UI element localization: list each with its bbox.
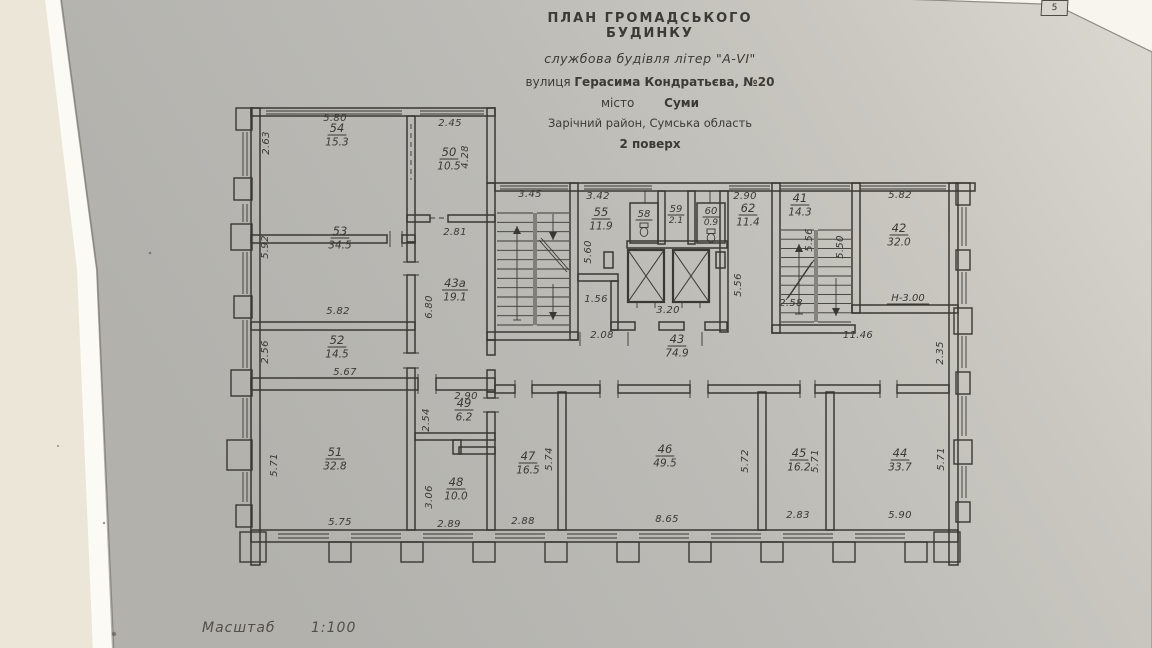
- dimension-label: 4.28: [460, 145, 471, 168]
- dimension-label: 1.56: [584, 294, 607, 305]
- dimension-label: 2.35: [935, 341, 946, 364]
- dimension-label: 2.58: [779, 298, 802, 309]
- room-number: 42: [892, 221, 907, 235]
- plan-title: ПЛАН ГРОМАДСЬКОГО БУДИНКУ: [516, 11, 784, 41]
- room-number: 53: [333, 224, 348, 238]
- scanned-floor-plan-page: 5.802.632.454.285.925.822.816.802.565.67…: [0, 0, 1152, 648]
- dimension-label: 5.74: [544, 447, 555, 470]
- room-number: 46: [658, 442, 673, 456]
- room-number: 52: [330, 333, 345, 347]
- room-number: 49: [457, 396, 472, 410]
- dimension-label: 2.83: [786, 510, 809, 521]
- district-line: Зарічний район, Сумська область: [516, 116, 784, 130]
- room-area: 49.5: [653, 458, 677, 470]
- plan-subtitle: службова будівля літер "А-VI": [516, 51, 784, 66]
- room-number: 44: [893, 446, 908, 460]
- street-label: вулиця: [526, 75, 571, 89]
- room-area: 32.8: [323, 461, 347, 473]
- dimension-label: 2.56: [260, 340, 271, 363]
- room-area: 34.5: [328, 240, 352, 252]
- dimension-label: 5.71: [269, 453, 280, 476]
- scale-word: Масштаб: [202, 620, 276, 636]
- scale-label: Масштаб 1:100: [202, 620, 356, 636]
- room-number: 62: [741, 201, 756, 215]
- dimension-label: 5.72: [740, 449, 751, 472]
- dimension-label: 5.75: [328, 517, 351, 528]
- dimension-label: 5.56: [733, 273, 744, 296]
- room-49-label: 496.2: [455, 396, 474, 424]
- room-43а-label: 43а19.1: [442, 276, 468, 304]
- room-number: 47: [521, 449, 536, 463]
- room-area: 2.1: [669, 216, 683, 226]
- room-area: 11.4: [736, 217, 759, 229]
- dimension-label: 11.46: [843, 330, 873, 341]
- room-number: 59: [670, 204, 683, 215]
- dimension-label: 5.67: [333, 367, 357, 378]
- dimension-label: 2.88: [511, 516, 534, 527]
- city-value: Суми: [664, 96, 699, 110]
- room-area: 10.5: [437, 161, 461, 173]
- dimension-label: 5.56: [804, 228, 815, 251]
- street-value: Герасима Кондратьєва, №20: [574, 75, 774, 89]
- room-number: 43: [670, 332, 685, 346]
- room-number: 45: [792, 446, 807, 460]
- room-number: 60: [705, 206, 718, 217]
- dimension-label: 3.06: [424, 485, 435, 508]
- room-area: 10.0: [444, 491, 468, 503]
- room-number: 50: [442, 145, 457, 159]
- dimension-label: 5.71: [810, 449, 821, 472]
- street-line: вулиця Герасима Кондратьєва, №20: [516, 75, 784, 89]
- dimension-label: 3.45: [518, 189, 541, 200]
- room-number: 48: [449, 475, 464, 489]
- room-number: 55: [594, 205, 609, 219]
- room-area: 0.9: [704, 218, 719, 228]
- dimension-label: 5.60: [583, 240, 594, 263]
- dimension-label: 8.65: [655, 514, 678, 525]
- room-area: 74.9: [665, 348, 689, 360]
- page-number-box: 5: [1041, 0, 1069, 16]
- city-label: місто: [601, 96, 634, 110]
- dimension-label: 5.82: [326, 306, 349, 317]
- room-area: 32.0: [887, 237, 911, 249]
- dimension-label: 5.90: [888, 510, 911, 521]
- dimension-label: 2.45: [438, 118, 461, 129]
- dimension-label: 2.08: [590, 330, 613, 341]
- title-block: ПЛАН ГРОМАДСЬКОГО БУДИНКУ службова будів…: [516, 11, 784, 151]
- dimension-label: 5.71: [936, 447, 947, 470]
- room-area: 6.2: [456, 412, 473, 424]
- dimension-label: 2.63: [261, 131, 272, 154]
- room-number: 51: [328, 445, 343, 459]
- room-area: 19.1: [443, 292, 466, 304]
- room-area: 14.3: [788, 207, 811, 219]
- room-area: 15.3: [325, 137, 348, 149]
- room-area: 16.5: [516, 465, 540, 477]
- dimension-label: 2.54: [421, 408, 432, 431]
- room-area: 14.5: [325, 349, 349, 361]
- scale-value: 1:100: [311, 620, 356, 636]
- room-area: 16.2: [787, 462, 811, 474]
- dimension-label: 3.42: [586, 191, 609, 202]
- room-number: 41: [793, 191, 808, 205]
- dimension-label: 5.50: [835, 235, 846, 258]
- dimension-label: 5.92: [260, 235, 271, 258]
- dimension-label: 5.82: [888, 190, 911, 201]
- room-area: 33.7: [888, 462, 912, 474]
- dimension-label: 2.89: [437, 519, 460, 530]
- city-line: місто Суми: [516, 96, 784, 110]
- height-mark: Н-3.00: [891, 293, 924, 304]
- room-area: 11.9: [589, 221, 613, 233]
- dimension-label: 3.20: [656, 305, 679, 316]
- floor-line: 2 поверх: [516, 137, 784, 151]
- room-number: 54: [330, 121, 345, 135]
- room-number: 43а: [444, 276, 466, 290]
- room-59-label: 592.1: [668, 204, 685, 226]
- room-number: 58: [638, 209, 651, 220]
- dimension-label: 2.81: [443, 227, 466, 238]
- dimension-label: 6.80: [424, 295, 435, 318]
